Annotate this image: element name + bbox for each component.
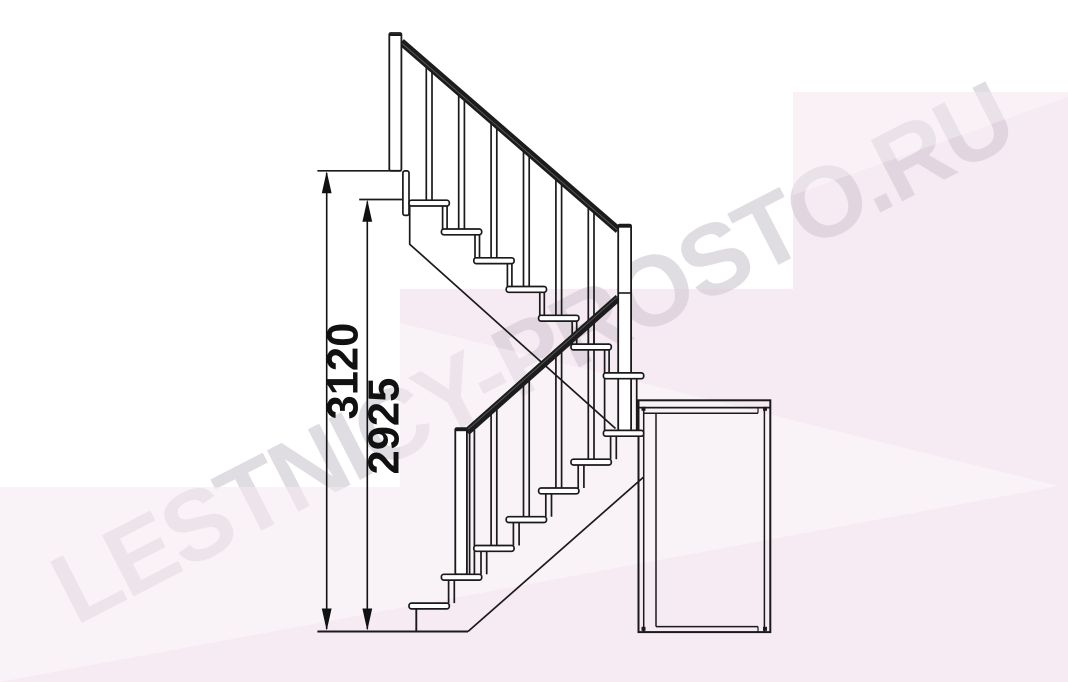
svg-text:2925: 2925 [361,378,409,475]
